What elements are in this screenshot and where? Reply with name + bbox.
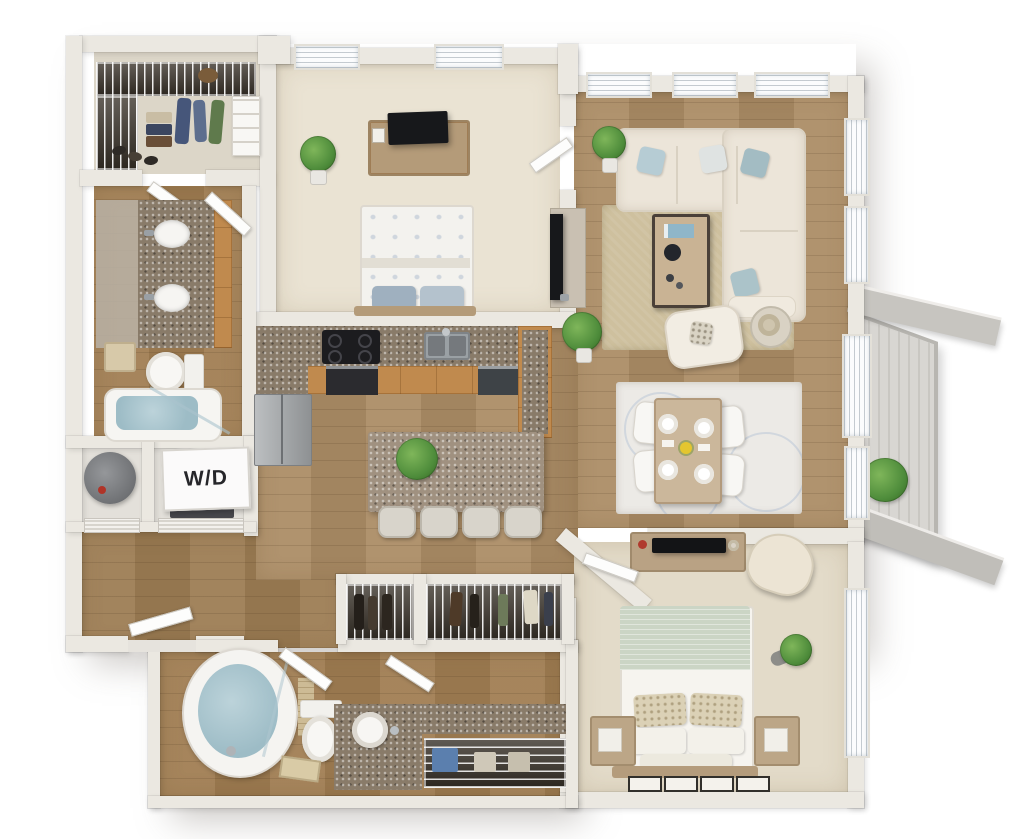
refrigerator <box>254 394 312 466</box>
wall <box>414 574 426 644</box>
plate-icon <box>694 418 714 438</box>
wall <box>560 792 864 808</box>
wall-art-icon <box>628 776 662 792</box>
faucet-icon <box>144 230 154 236</box>
bar-stool <box>504 506 542 538</box>
wall <box>148 796 578 808</box>
hanging-clothes-icon <box>523 590 539 625</box>
throw-pillow <box>698 144 728 174</box>
plant-pot <box>602 158 618 173</box>
closet-drawer-unit <box>232 96 260 156</box>
wall <box>336 574 574 584</box>
wall-art-icon <box>664 776 698 792</box>
faucet-icon <box>144 294 154 300</box>
tub-water <box>116 396 198 430</box>
oven-door <box>326 366 378 395</box>
tv <box>550 214 563 300</box>
folded-clothes-icon <box>146 112 172 123</box>
hanging-clothes-icon <box>544 592 553 626</box>
hall-closet-interior <box>426 584 562 640</box>
burner-icon <box>328 334 342 348</box>
chair-pillow <box>689 321 714 346</box>
living-plant-icon <box>562 312 602 352</box>
living-plant-icon <box>592 126 626 160</box>
vase-icon <box>664 244 681 261</box>
hanging-bag-icon <box>198 68 218 83</box>
plate-icon <box>658 414 678 434</box>
wall <box>260 36 276 326</box>
washer-dryer-label: W/D <box>184 466 229 492</box>
refrigerator-door-line <box>281 394 283 464</box>
decor-icon <box>666 274 674 282</box>
burner-icon <box>358 334 372 348</box>
bed-pillow <box>630 728 686 754</box>
vanity-mirror <box>96 200 138 348</box>
plate-icon <box>658 460 678 480</box>
bed-blanket <box>620 606 750 670</box>
toilet <box>302 716 338 762</box>
burner-icon <box>328 350 342 364</box>
book-icon <box>664 224 694 238</box>
wall <box>558 44 578 94</box>
window <box>672 72 738 98</box>
faucet-icon <box>390 726 399 735</box>
washer-dryer-box: W/D <box>161 446 251 511</box>
window <box>844 588 870 758</box>
photo-frame-icon <box>372 128 385 143</box>
wall <box>80 170 142 186</box>
dishwasher <box>478 366 520 395</box>
hanging-clothes-icon <box>193 100 207 143</box>
water-heater-valve-icon <box>98 486 106 494</box>
kitchen-island <box>368 432 544 512</box>
wall <box>66 36 82 652</box>
wall-art-icon <box>700 776 734 792</box>
kitchen-counter-return-top <box>522 330 548 434</box>
wall <box>566 640 578 808</box>
wall <box>142 436 154 524</box>
plate-icon <box>694 464 714 484</box>
sofa-seam <box>676 146 678 204</box>
wall <box>148 640 160 808</box>
sink-basin <box>428 336 445 356</box>
window <box>434 44 504 70</box>
wall <box>336 574 346 644</box>
closet-shelf <box>96 62 256 96</box>
headboard <box>354 306 476 316</box>
sink-basin <box>449 336 466 356</box>
bar-stool <box>378 506 416 538</box>
napkin-icon <box>698 444 710 451</box>
hanging-clothes-icon <box>354 594 364 630</box>
wall <box>338 640 578 652</box>
nightstand-drawer <box>598 728 622 752</box>
folded-clothes-icon <box>146 136 172 147</box>
utility-closet-door <box>84 518 140 533</box>
bed-pillow <box>688 728 744 754</box>
plant-pot <box>310 170 327 185</box>
table-lamp-icon <box>758 314 780 336</box>
nightstand-drawer <box>764 728 788 752</box>
decor-icon <box>638 540 647 549</box>
balcony-sliding-door <box>842 334 872 438</box>
tub-faucet-icon <box>226 746 236 756</box>
lamp-icon <box>728 540 739 551</box>
decor-icon <box>676 282 683 289</box>
hanging-clothes-icon <box>449 592 463 627</box>
window <box>844 206 870 284</box>
throw-pillow <box>636 146 667 177</box>
wall <box>66 636 128 652</box>
storage-box-icon <box>508 752 530 772</box>
hanging-clothes-icon <box>470 594 479 628</box>
towel-icon <box>104 342 136 372</box>
vanity-counter-strip <box>422 704 566 734</box>
tv <box>652 538 726 553</box>
sink <box>154 220 190 248</box>
water-heater <box>84 452 136 504</box>
flower-centerpiece-icon <box>680 442 692 454</box>
sofa-seam <box>740 230 798 232</box>
bed-pillow <box>689 693 743 728</box>
bedroom-1-plant-icon <box>300 136 336 172</box>
burner-icon <box>358 350 372 364</box>
hanging-clothes-icon <box>498 594 508 626</box>
plant-pot <box>576 348 592 363</box>
floor-plan: W/D <box>0 0 1023 839</box>
island-plant-icon <box>396 438 438 480</box>
sink <box>154 284 190 312</box>
tv <box>387 111 448 145</box>
threshold <box>128 640 196 652</box>
folded-clothes-icon <box>146 124 172 135</box>
vessel-sink <box>352 712 388 748</box>
bar-stool <box>462 506 500 538</box>
bed-pillow <box>633 693 687 728</box>
kitchen-counter-corner <box>256 326 308 396</box>
window <box>844 446 870 520</box>
wall <box>80 36 276 52</box>
toilet-tank <box>184 354 204 392</box>
wall-art-icon <box>736 776 770 792</box>
hanging-clothes-icon <box>382 594 392 630</box>
wall <box>562 574 574 644</box>
napkin-icon <box>662 440 674 447</box>
bedroom-2-plant-icon <box>780 634 812 666</box>
hanging-clothes-icon <box>368 596 377 630</box>
media-player-icon <box>560 294 569 301</box>
storage-box-icon <box>474 752 496 772</box>
laundry-closet-door <box>158 518 244 533</box>
window <box>294 44 360 70</box>
storage-box-icon <box>432 748 458 772</box>
bar-stool <box>420 506 458 538</box>
bed-fold <box>362 258 470 268</box>
window <box>586 72 652 98</box>
wall <box>258 36 290 64</box>
sofa-seam <box>736 146 738 204</box>
faucet-icon <box>442 328 450 336</box>
window <box>844 118 870 196</box>
window <box>754 72 830 98</box>
